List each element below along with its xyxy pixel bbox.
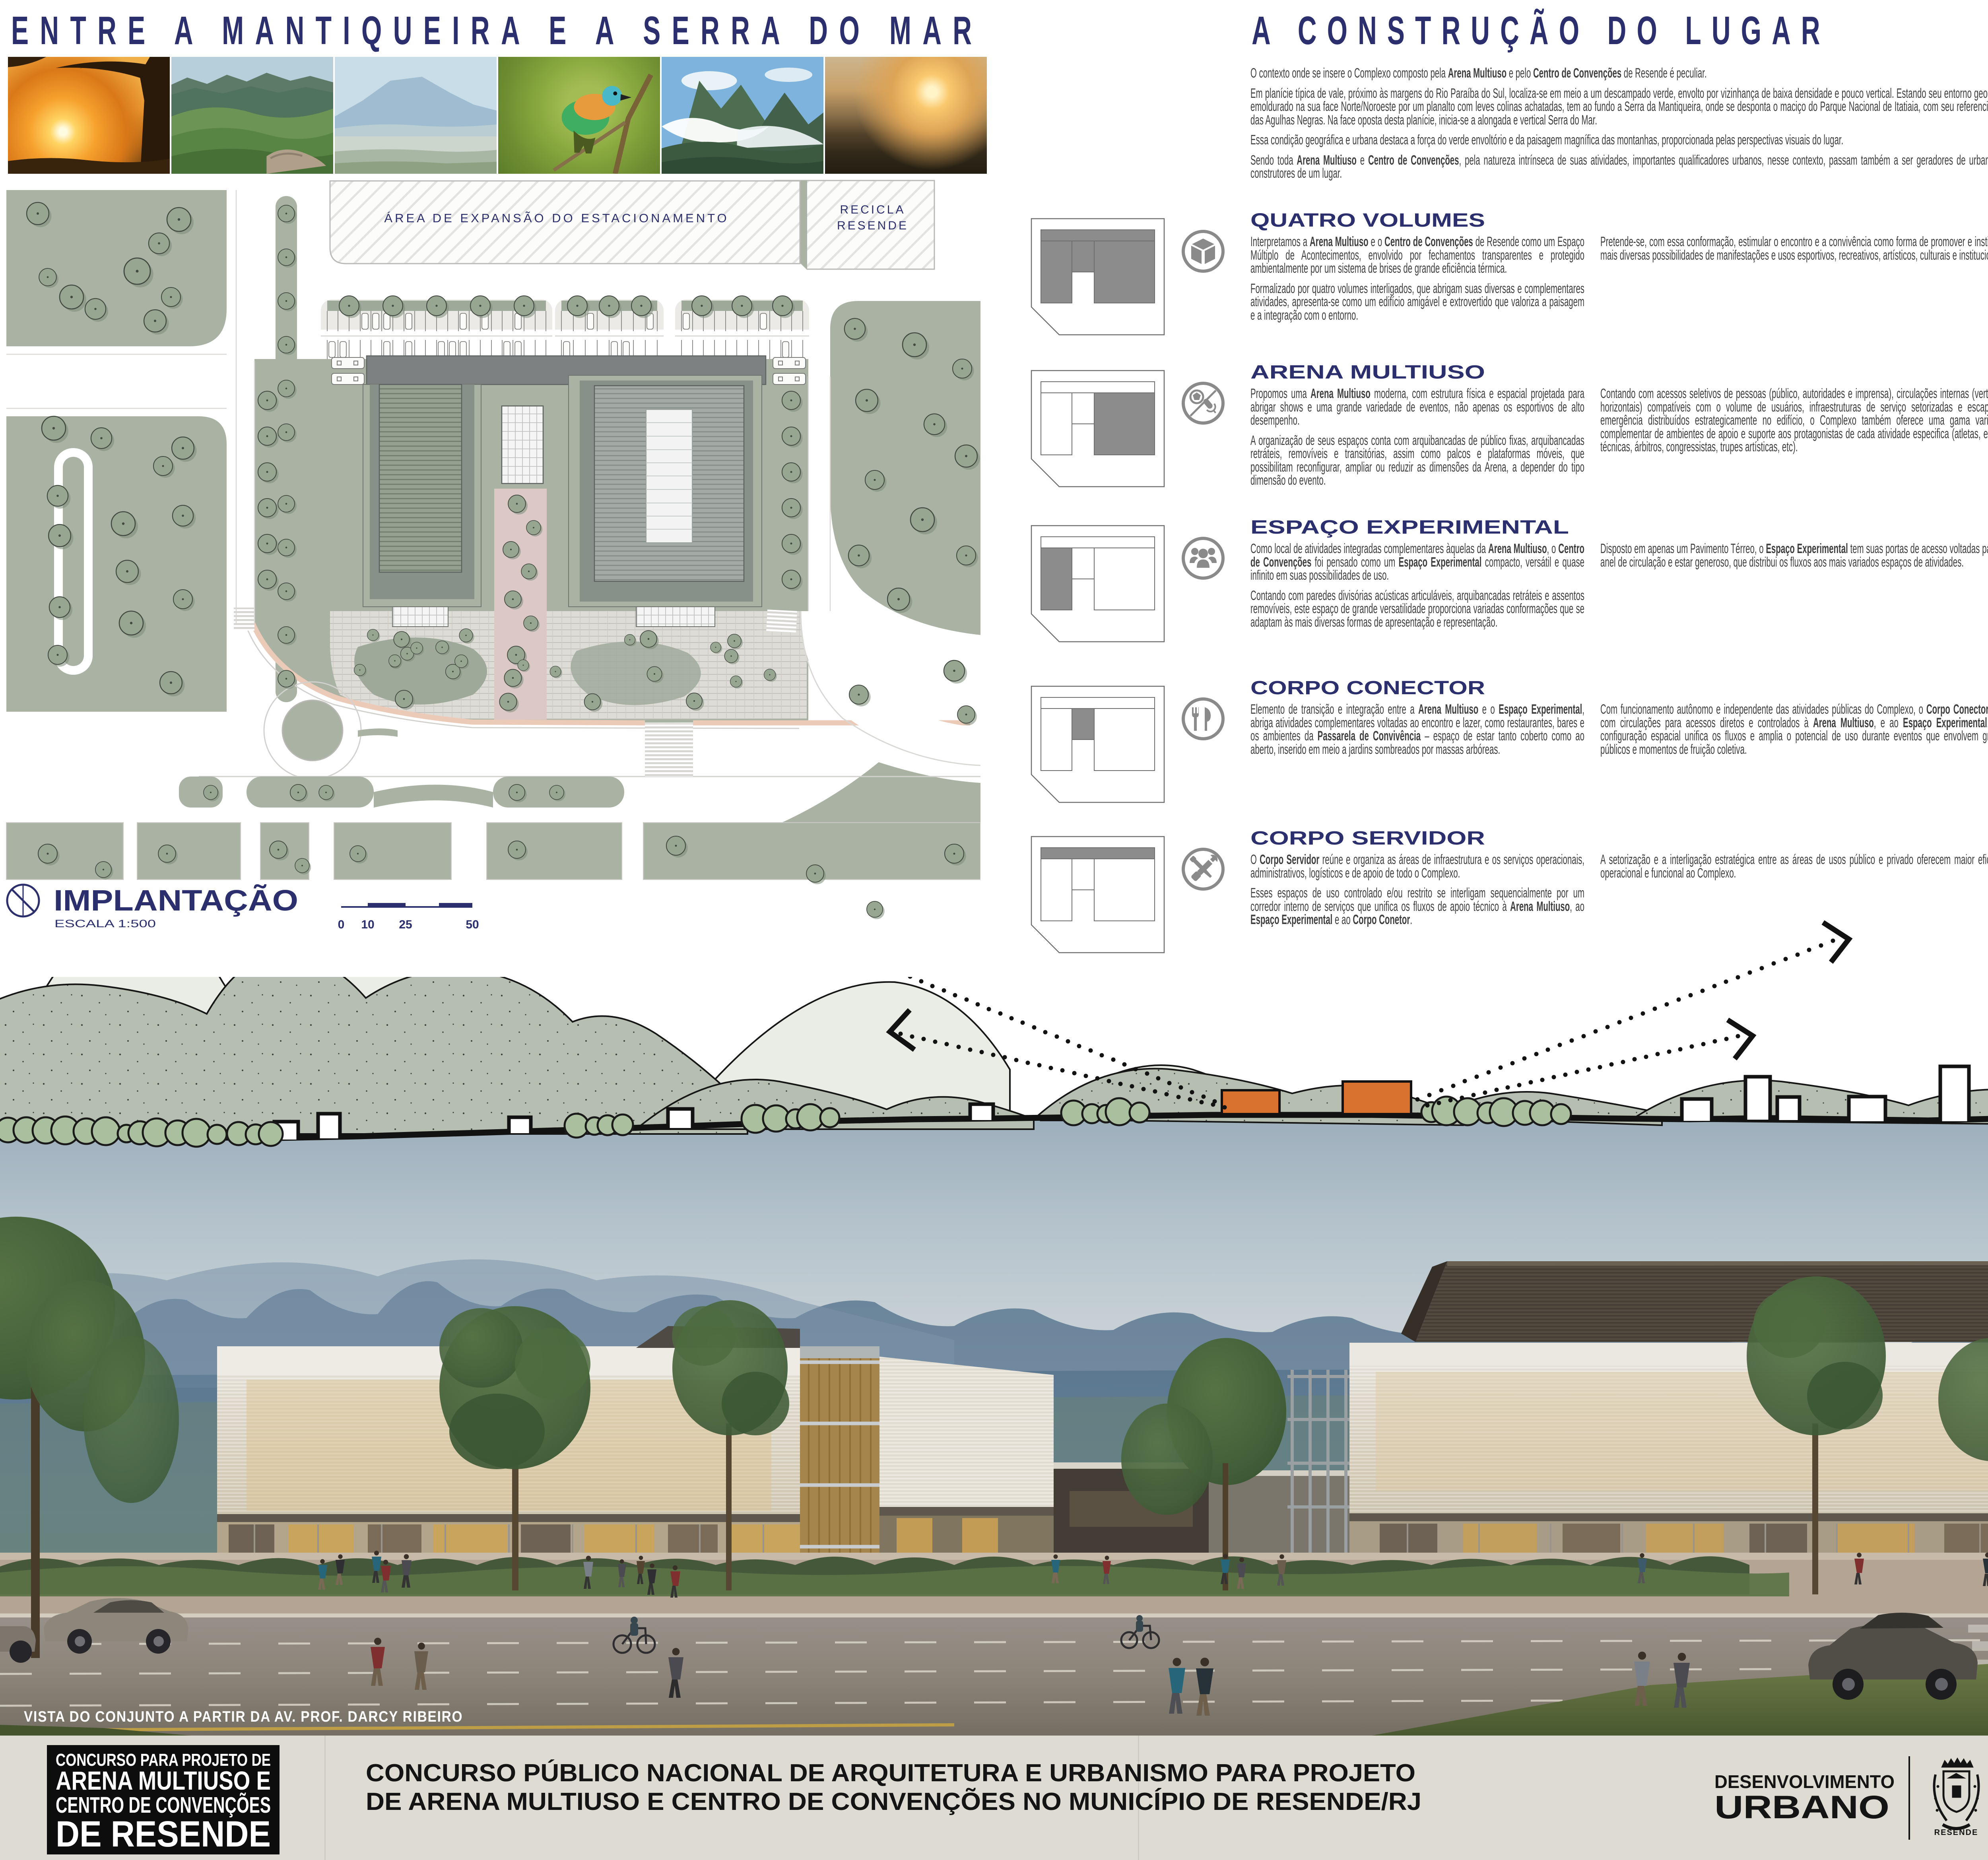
svg-text:ÁREA DE EXPANSÃO DO ESTACIONAM: ÁREA DE EXPANSÃO DO ESTACIONAMENTO [384,211,729,225]
svg-text:IMPLANTAÇÃO: IMPLANTAÇÃO [54,884,298,917]
svg-text:URBANO: URBANO [1714,1789,1889,1825]
svg-text:CORPO CONECTOR: CORPO CONECTOR [1250,678,1485,699]
svg-text:CORPO SERVIDOR: CORPO SERVIDOR [1250,828,1485,849]
svg-text:50: 50 [466,918,479,931]
svg-text:0: 0 [338,918,345,931]
svg-text:CONCURSO PÚBLICO NACIONAL DE A: CONCURSO PÚBLICO NACIONAL DE ARQUITETURA… [366,1759,1415,1787]
svg-text:QUATRO VOLUMES: QUATRO VOLUMES [1250,210,1485,231]
svg-text:ESCALA 1:500: ESCALA 1:500 [54,918,156,930]
svg-text:DE RESENDE: DE RESENDE [56,1814,271,1854]
svg-text:ARENA MULTIUSO: ARENA MULTIUSO [1250,362,1485,383]
svg-text:ESPAÇO EXPERIMENTAL: ESPAÇO EXPERIMENTAL [1250,517,1569,538]
svg-text:10: 10 [361,918,374,931]
svg-text:RECICLA: RECICLA [840,203,905,216]
svg-text:VISTA DO CONJUNTO A PARTIR DA: VISTA DO CONJUNTO A PARTIR DA AV. PROF. … [24,1708,463,1725]
svg-text:RESENDE: RESENDE [837,219,909,232]
svg-text:RESENDE: RESENDE [1934,1828,1978,1837]
svg-text:25: 25 [399,918,412,931]
svg-text:DE ARENA MULTIUSO E CENTRO DE: DE ARENA MULTIUSO E CENTRO DE CONVENÇÕES… [366,1788,1421,1815]
svg-text:ARENA MULTIUSO E: ARENA MULTIUSO E [56,1766,271,1795]
